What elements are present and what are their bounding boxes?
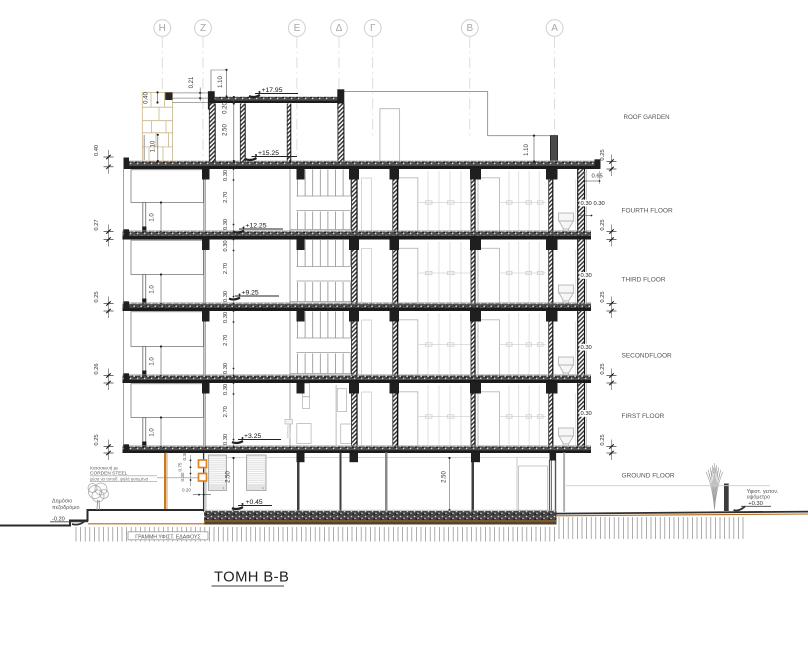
svg-text:0.25: 0.25 bbox=[94, 291, 100, 302]
svg-text:0.26: 0.26 bbox=[94, 363, 100, 374]
svg-text:ΓΡΑΜΜΗ ΥΦΙΣΤ. ΕΔΑΦΟΥΣ: ΓΡΑΜΜΗ ΥΦΙΣΤ. ΕΔΑΦΟΥΣ bbox=[135, 534, 200, 540]
svg-text:0.25: 0.25 bbox=[94, 434, 100, 445]
svg-text:0.25: 0.25 bbox=[600, 149, 606, 160]
svg-text:Δ: Δ bbox=[336, 23, 343, 34]
svg-text:0.30: 0.30 bbox=[581, 345, 592, 351]
svg-text:0.25: 0.25 bbox=[600, 291, 606, 302]
svg-text:0.40: 0.40 bbox=[94, 145, 100, 156]
svg-text:1.0: 1.0 bbox=[150, 428, 156, 437]
svg-text:0.30: 0.30 bbox=[180, 472, 185, 481]
svg-text:Κατασκευή με: Κατασκευή με bbox=[90, 464, 118, 470]
svg-text:FIRST FLOOR: FIRST FLOOR bbox=[622, 413, 665, 420]
svg-text:0.25: 0.25 bbox=[600, 363, 606, 374]
svg-text:0.40: 0.40 bbox=[144, 92, 150, 104]
svg-text:FOURTH FLOOR: FOURTH FLOOR bbox=[622, 208, 673, 215]
svg-text:0.30: 0.30 bbox=[594, 201, 605, 207]
svg-text:2.70: 2.70 bbox=[223, 192, 229, 203]
svg-text:0.30: 0.30 bbox=[223, 312, 229, 323]
svg-text:1.10: 1.10 bbox=[151, 140, 157, 152]
svg-text:Ε: Ε bbox=[294, 23, 301, 34]
svg-text:1.0: 1.0 bbox=[150, 357, 156, 366]
svg-text:0.30: 0.30 bbox=[581, 411, 592, 417]
svg-text:0.30: 0.30 bbox=[581, 201, 592, 207]
svg-text:+12.25: +12.25 bbox=[246, 223, 267, 230]
svg-text:0.30: 0.30 bbox=[223, 170, 229, 181]
svg-text:0.30: 0.30 bbox=[223, 240, 229, 251]
svg-text:0.30: 0.30 bbox=[223, 219, 229, 230]
svg-text:πεζοδρόμιο: πεζοδρόμιο bbox=[52, 504, 80, 511]
svg-text:0.30: 0.30 bbox=[223, 291, 229, 302]
svg-text:Ζ: Ζ bbox=[200, 23, 206, 34]
svg-text:0.30: 0.30 bbox=[182, 451, 187, 460]
svg-text:0.25: 0.25 bbox=[600, 219, 606, 230]
svg-text:2.50: 2.50 bbox=[442, 471, 448, 483]
svg-text:1.0: 1.0 bbox=[150, 213, 156, 222]
svg-text:+17.95: +17.95 bbox=[262, 87, 283, 94]
svg-text:2.70: 2.70 bbox=[223, 335, 229, 346]
svg-text:0.30: 0.30 bbox=[581, 273, 592, 279]
svg-text:Α: Α bbox=[551, 23, 558, 34]
svg-text:0.25: 0.25 bbox=[600, 434, 606, 445]
svg-text:1.10: 1.10 bbox=[524, 144, 530, 156]
svg-text:μέσα να τοποθ. ψηλά φυτεμένα: μέσα να τοποθ. ψηλά φυτεμένα bbox=[90, 476, 149, 481]
svg-text:0.27: 0.27 bbox=[94, 219, 100, 230]
svg-text:0.20: 0.20 bbox=[223, 102, 229, 114]
svg-text:0.65: 0.65 bbox=[592, 174, 603, 180]
svg-text:0.30: 0.30 bbox=[223, 384, 229, 395]
svg-text:ROOF GARDEN: ROOF GARDEN bbox=[624, 114, 670, 121]
svg-text:+15.25: +15.25 bbox=[258, 150, 279, 157]
svg-text:2.50: 2.50 bbox=[226, 471, 232, 483]
svg-text:THIRD FLOOR: THIRD FLOOR bbox=[622, 277, 666, 284]
svg-text:1.0: 1.0 bbox=[150, 285, 156, 294]
svg-text:2.70: 2.70 bbox=[223, 406, 229, 417]
svg-text:2.70: 2.70 bbox=[223, 263, 229, 274]
svg-text:0.20: 0.20 bbox=[182, 488, 191, 493]
svg-text:0.30: 0.30 bbox=[223, 363, 229, 374]
svg-text:GROUND FLOOR: GROUND FLOOR bbox=[622, 473, 675, 480]
svg-text:Δημόσιο: Δημόσιο bbox=[52, 498, 72, 505]
svg-text:Γ: Γ bbox=[370, 23, 376, 34]
svg-text:2.50: 2.50 bbox=[223, 124, 229, 136]
svg-text:ΤΟΜΗ Β-Β: ΤΟΜΗ Β-Β bbox=[214, 570, 289, 586]
svg-text:Β: Β bbox=[466, 23, 473, 34]
svg-text:Η: Η bbox=[159, 23, 166, 34]
svg-text:0.21: 0.21 bbox=[189, 76, 195, 88]
svg-text:+3.25: +3.25 bbox=[244, 433, 261, 440]
svg-text:+9.25: +9.25 bbox=[242, 290, 259, 297]
svg-text:1.10: 1.10 bbox=[218, 76, 224, 88]
svg-text:0.75: 0.75 bbox=[178, 462, 183, 471]
svg-text:SECONDFLOOR: SECONDFLOOR bbox=[622, 353, 673, 360]
svg-text:+0.45: +0.45 bbox=[246, 499, 263, 506]
svg-text:0.30: 0.30 bbox=[223, 434, 229, 445]
svg-text:υψόμετρο: υψόμετρο bbox=[747, 494, 771, 501]
